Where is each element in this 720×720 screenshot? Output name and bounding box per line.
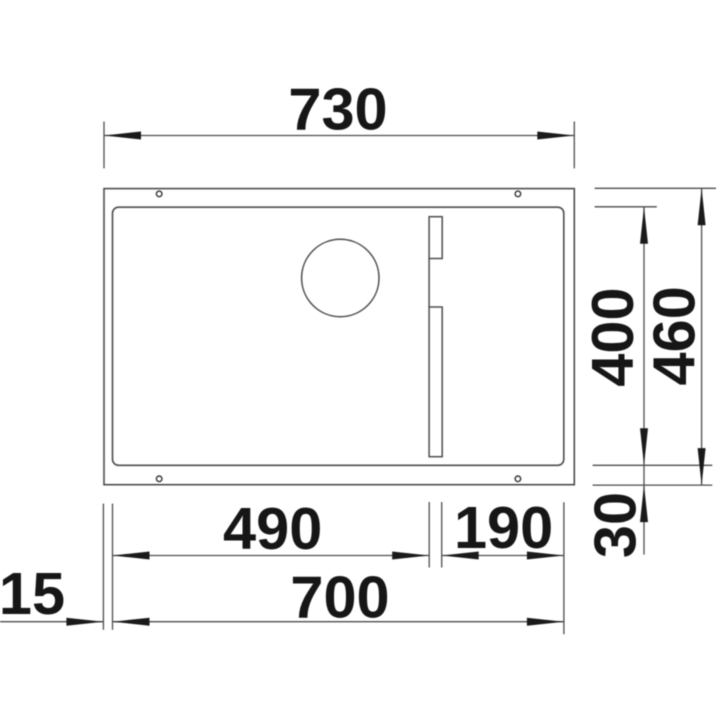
svg-text:700: 700 [290,563,389,630]
svg-text:400: 400 [579,287,646,386]
svg-text:30: 30 [582,492,649,558]
svg-text:730: 730 [288,76,387,143]
svg-text:15: 15 [0,560,65,627]
svg-text:490: 490 [223,495,322,562]
svg-text:190: 190 [454,494,553,561]
svg-text:460: 460 [640,286,707,385]
